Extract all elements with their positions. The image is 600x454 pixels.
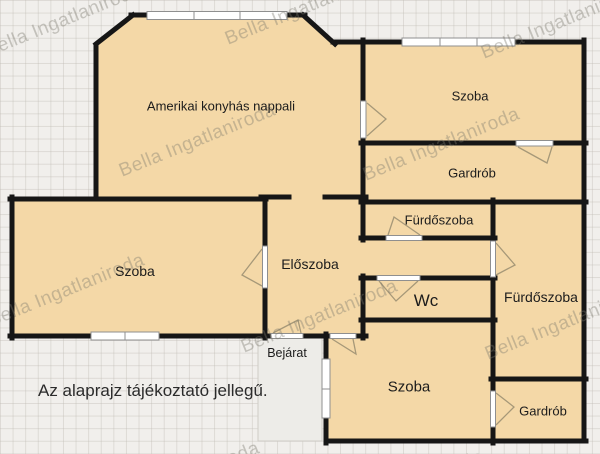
room-label-gardrob-bottom: Gardrób xyxy=(519,404,567,419)
room-label-szoba-top: Szoba xyxy=(452,89,489,104)
floor-plan-canvas: Bella Ingatlaniroda Bella Ingatlaniroda … xyxy=(0,0,600,454)
room-label-szoba-bottom: Szoba xyxy=(388,379,431,396)
entrance-label: Bejárat xyxy=(267,346,307,360)
door-leaf-szoba-top xyxy=(361,101,367,138)
disclaimer-text: Az alaprajz tájékoztató jellegű. xyxy=(38,381,268,401)
door-leaf-szoba-bottom xyxy=(330,334,356,339)
room-label-furdoszoba-small: Fürdőszoba xyxy=(405,213,474,228)
door-leaf-szoba-left xyxy=(263,246,268,288)
door-leaf-furdoszoba-right xyxy=(491,241,496,277)
door-leaf-bejarat xyxy=(271,334,303,339)
room-label-wc: Wc xyxy=(414,291,439,311)
room-label-furdoszoba-right: Fürdőszoba xyxy=(504,289,578,305)
room-label-szoba-left: Szoba xyxy=(115,263,155,279)
door-leaf-gardrob-top xyxy=(516,141,553,147)
room-label-eloszoba: Előszoba xyxy=(281,256,339,272)
room-label-gardrob-top: Gardrób xyxy=(448,166,496,181)
door-leaf-wc xyxy=(377,276,420,281)
door-leaf-gardrob-bottom xyxy=(491,391,496,427)
window-szoba-top xyxy=(402,38,515,46)
window-living-room xyxy=(147,12,287,20)
room-label-nappali: Amerikai konyhás nappali xyxy=(147,99,295,114)
door-leaf-furdoszoba-small xyxy=(386,236,422,241)
